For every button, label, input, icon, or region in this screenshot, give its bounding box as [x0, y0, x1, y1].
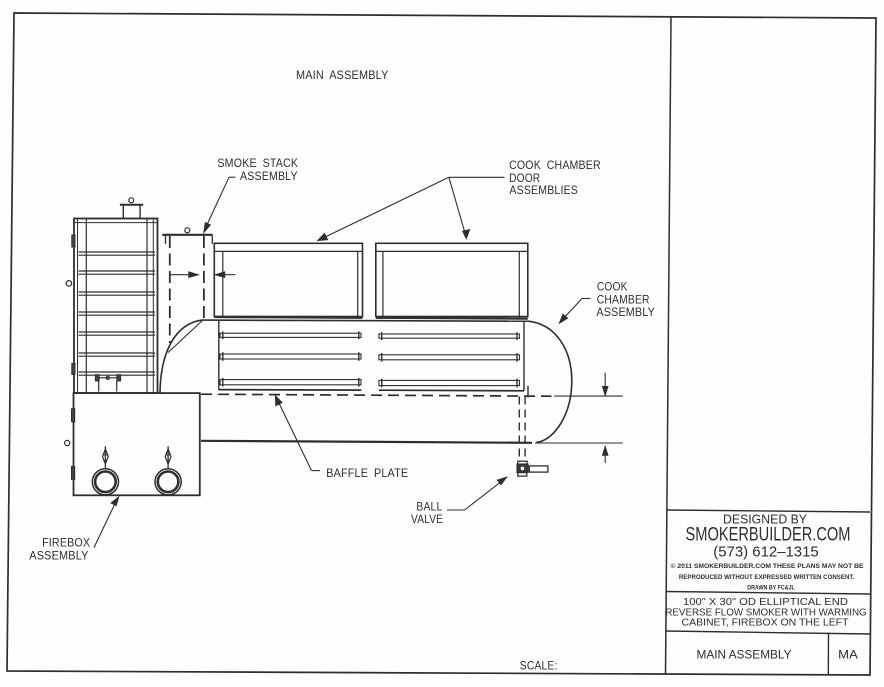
svg-text:SMOKE STACK: SMOKE STACK: [217, 156, 298, 170]
svg-text:BAFFLE PLATE: BAFFLE PLATE: [326, 466, 408, 480]
svg-text:ASSEMBLY: ASSEMBLY: [596, 305, 655, 319]
svg-text:CABINET, FIREBOX ON THE LEFT: CABINET, FIREBOX ON THE LEFT: [682, 618, 849, 629]
svg-text:MA: MA: [838, 647, 858, 661]
svg-text:FIREBOX: FIREBOX: [42, 535, 90, 549]
svg-text:ASSEMBLY: ASSEMBLY: [29, 549, 88, 563]
svg-text:ASSEMBLIES: ASSEMBLIES: [509, 183, 578, 197]
svg-text:DRAWN BY FC&JL: DRAWN BY FC&JL: [747, 584, 795, 591]
svg-text:(573) 612–1315: (573) 612–1315: [713, 543, 819, 560]
svg-text:VALVE: VALVE: [411, 512, 443, 526]
svg-text:MAIN ASSEMBLY: MAIN ASSEMBLY: [296, 68, 389, 82]
svg-text:MAIN ASSEMBLY: MAIN ASSEMBLY: [697, 647, 792, 661]
svg-text:ASSEMBLY: ASSEMBLY: [240, 169, 298, 183]
svg-text:COOK CHAMBER: COOK CHAMBER: [509, 158, 601, 172]
svg-text:REPRODUCED WITHOUT EXPRESSED W: REPRODUCED WITHOUT EXPRESSED WRITTEN CON…: [679, 574, 855, 581]
svg-text:SCALE:: SCALE:: [520, 659, 558, 673]
svg-text:© 2011 SMOKERBUILDER.COM THESE: © 2011 SMOKERBUILDER.COM THESE PLANS MAY…: [671, 562, 865, 570]
